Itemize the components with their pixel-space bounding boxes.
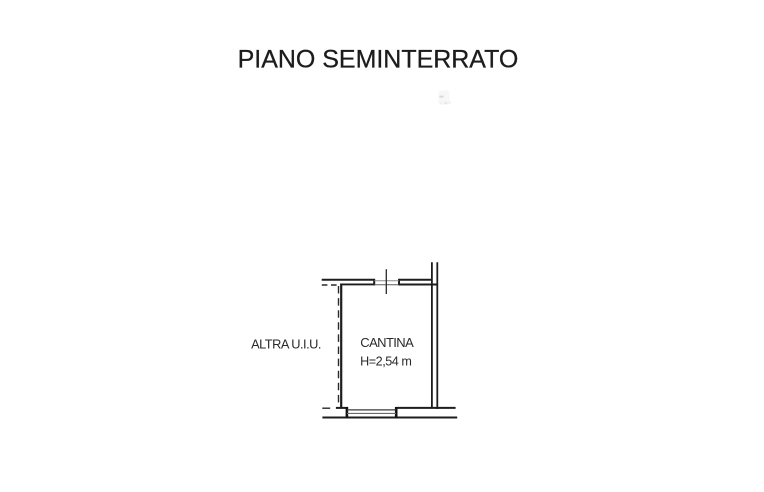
svg-text:H=2,54 m: H=2,54 m — [360, 355, 411, 369]
svg-text:ALTRA U.I.U.: ALTRA U.I.U. — [251, 336, 321, 351]
svg-text:PIANO SEMINTERRATO: PIANO SEMINTERRATO — [238, 46, 519, 74]
svg-text:CANTINA: CANTINA — [360, 335, 414, 350]
